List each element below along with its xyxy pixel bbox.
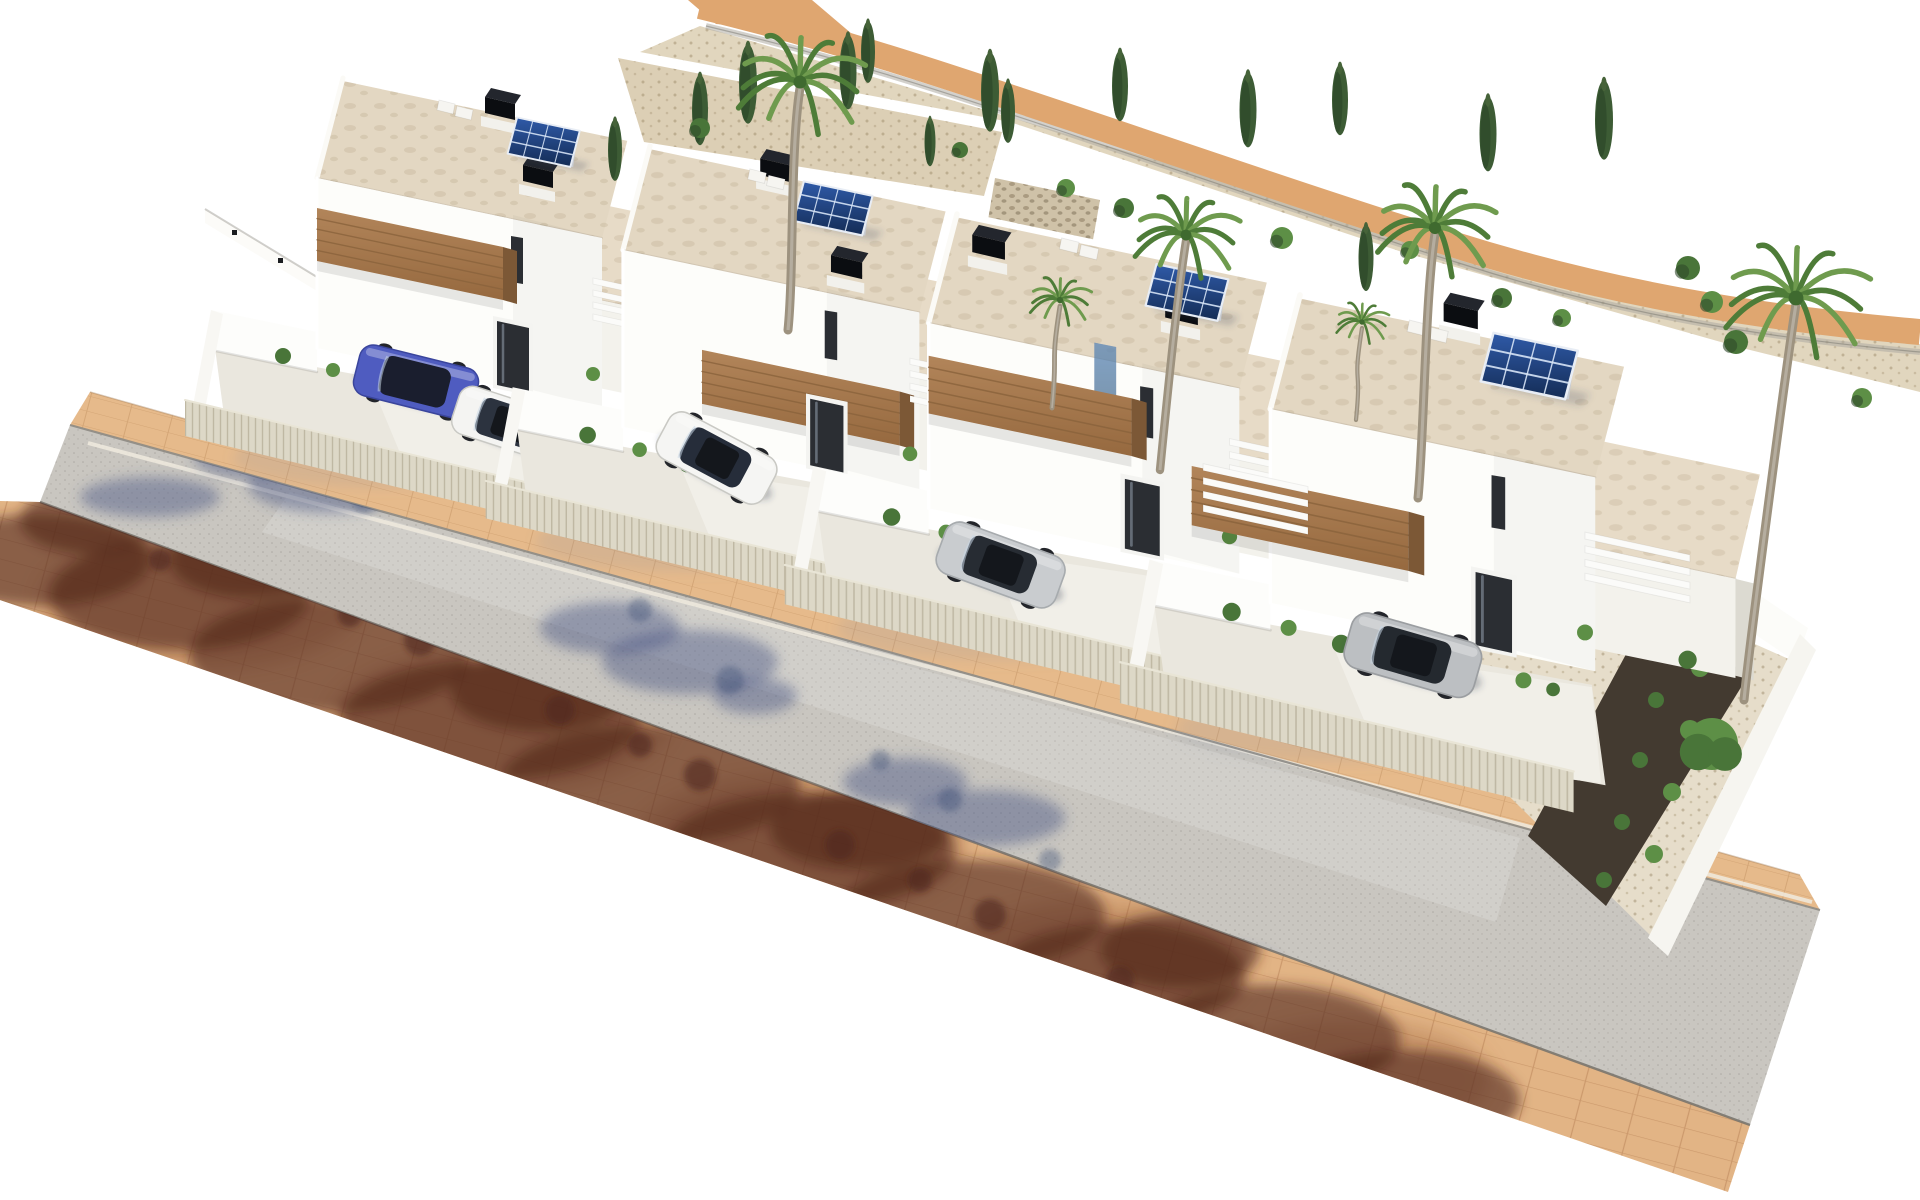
render-viewport <box>0 0 1920 1200</box>
window-slit <box>825 310 837 360</box>
villa-development-aerial-render <box>0 0 1920 1200</box>
window-slit <box>1492 475 1506 530</box>
chimney <box>827 246 869 294</box>
